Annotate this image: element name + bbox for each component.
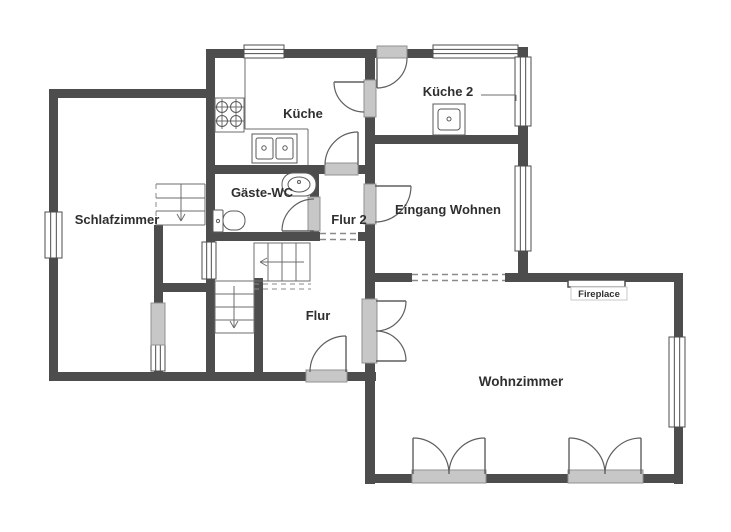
kitchen-sink-basin-left	[256, 138, 273, 159]
room-label-gaeste-wc: Gäste-WC	[231, 185, 294, 200]
room-label-flur: Flur	[306, 308, 331, 323]
window-stairwell-interior	[202, 242, 216, 279]
door-threshold-flur-wohnzimmer	[362, 299, 377, 363]
window-closet-left	[151, 344, 165, 371]
room-label-kueche: Küche	[283, 106, 323, 121]
stairwell-right-wall	[254, 278, 263, 372]
window-wohnzimmer-right	[669, 337, 685, 427]
door-threshold-closet	[151, 303, 165, 345]
window-kueche2-right	[515, 57, 531, 126]
kitchen-sink-basin-right	[276, 138, 293, 159]
schlafzimmer-top-wall	[49, 89, 215, 98]
kueche2-bottom-wall	[365, 135, 528, 144]
window-eingang-right	[515, 166, 531, 251]
door-threshold-kueche-flur2	[325, 163, 358, 175]
toilet-tank	[213, 210, 223, 232]
door-threshold-kueche2-top	[377, 46, 407, 58]
window-kueche-top	[244, 45, 284, 58]
door-threshold-entry	[306, 370, 347, 382]
floorplan-page: SchlafzimmerKücheKüche 2Gäste-WCFlur 2Ei…	[0, 0, 731, 532]
floorplan-svg: SchlafzimmerKücheKüche 2Gäste-WCFlur 2Ei…	[0, 0, 731, 532]
fireplace-bar	[568, 280, 625, 287]
closet-top-wall	[154, 283, 215, 292]
window-kueche2-top	[433, 45, 518, 58]
room-label-flur-2: Flur 2	[331, 212, 366, 227]
kueche2-appliance-inner	[438, 109, 460, 130]
door-threshold-kueche-kueche2	[364, 80, 376, 117]
fireplace-label: Fireplace	[578, 289, 620, 300]
room-label-wohnzimmer: Wohnzimmer	[479, 374, 564, 389]
room-label-schlafzimmer: Schlafzimmer	[75, 212, 160, 227]
room-label-eingang-wohnen: Eingang Wohnen	[395, 202, 501, 217]
room-label-kueche-2: Küche 2	[423, 84, 474, 99]
toilet-bowl	[223, 211, 245, 230]
door-threshold-wc	[308, 197, 320, 231]
window-schlafzimmer-left	[45, 212, 62, 258]
